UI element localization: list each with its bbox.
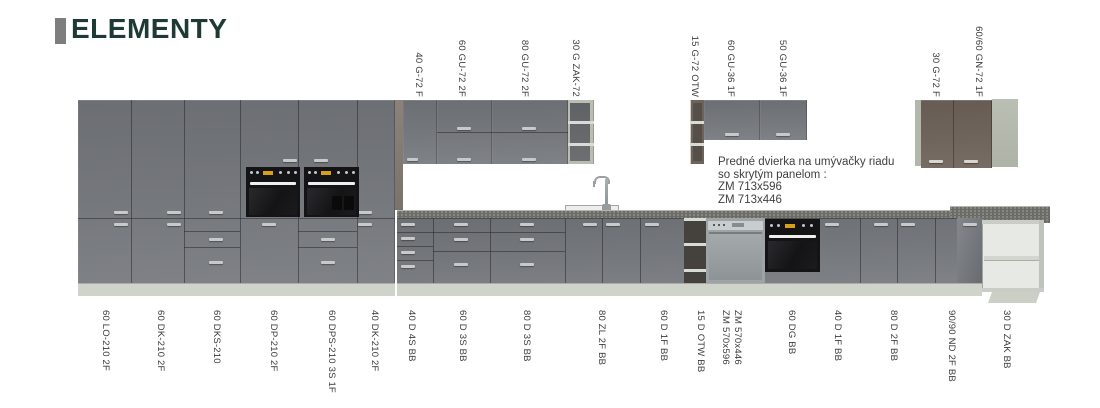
drawer-line (433, 232, 490, 233)
dishwasher-button (718, 224, 720, 226)
plinth (397, 283, 982, 296)
drawer-line (184, 231, 240, 232)
dishwasher-button (723, 224, 725, 226)
shelf-interior (570, 103, 590, 161)
label-60-dg-bb: 60 DG BB (786, 310, 796, 354)
shelf-side-panel (1039, 220, 1044, 292)
drawer-handle (454, 223, 468, 226)
base-cabinet-run (397, 218, 982, 283)
shelf (684, 269, 706, 272)
dishwasher-front-panel (709, 232, 762, 280)
label-60-dp-210-2f: 60 DP-210 2F (268, 310, 278, 372)
oven-knob (294, 171, 297, 174)
faucet-column (605, 179, 608, 206)
door-handle (358, 211, 372, 214)
label-60-d-3s-bb: 60 D 3S BB (457, 310, 467, 362)
oven-handle (769, 235, 816, 238)
door-handle (725, 133, 739, 136)
drawer-line (397, 246, 433, 247)
door-handle (583, 223, 597, 226)
canister-silhouette (332, 196, 342, 210)
wall-cabinet-80-gu-72-2f (492, 100, 568, 164)
drawer-handle (209, 238, 223, 241)
door-split-line (78, 218, 395, 219)
drawer-handle (520, 223, 534, 226)
door-handle (645, 223, 659, 226)
door-handle (964, 160, 978, 163)
door-divider (602, 218, 603, 283)
cabinet-divider (240, 100, 241, 283)
label-40-dk-210-2f: 40 DK-210 2F (369, 310, 379, 372)
door-handle (114, 211, 128, 214)
cabinet-divider (935, 218, 936, 283)
door-handle (167, 223, 181, 226)
note-line: Predné dvierka na umývačky riadu (718, 156, 894, 169)
plinth (78, 283, 395, 296)
door-handle (825, 223, 839, 226)
label-40-d-4s-bb: 40 D 4S BB (406, 310, 416, 362)
drawer-line (298, 231, 357, 232)
door-handle (963, 223, 977, 226)
door-handle (522, 127, 536, 130)
door-handle (901, 223, 915, 226)
shelf (684, 218, 706, 221)
drawer-handle (321, 238, 335, 241)
cabinet-divider (131, 100, 132, 283)
oven-knob (250, 171, 253, 174)
oven-knob (352, 171, 355, 174)
wall-cabinet-60-60-gn-72-1f (954, 100, 992, 168)
door-handle (874, 223, 888, 226)
oven-door-glass (307, 188, 356, 215)
drawer-handle (321, 261, 335, 264)
door-handle (114, 223, 128, 226)
oven-display (263, 171, 273, 175)
corner-cabinet-side-panel (992, 99, 1018, 167)
oven-knob (810, 224, 813, 227)
door-handle (358, 223, 372, 226)
label-80-d-2f-bb: 80 D 2F BB (888, 310, 898, 361)
shelf (568, 143, 594, 146)
oven-display (321, 171, 331, 175)
oven-knob (287, 171, 290, 174)
base-shelf-30-d-zak (982, 220, 1044, 292)
label-90-90-nd-2f-bb: 90/90 ND 2F BB (946, 310, 956, 382)
wall-cabinet-60-gu-36-1f (704, 100, 760, 140)
wall-cabinet-40-g-72-f (403, 100, 437, 164)
label-60-d-1f-bb: 60 D 1F BB (658, 310, 668, 361)
oven-handle (308, 182, 355, 185)
flap-split-line (437, 132, 492, 133)
drawer-line (397, 232, 433, 233)
cabinet-divider (184, 100, 185, 283)
door-handle (929, 160, 943, 163)
catalog-page: ELEMENTY 40 G-72 F 60 GU-72 2F 80 GU-72 … (0, 0, 1100, 408)
label-60-dks-210: 60 DKS-210 (211, 310, 221, 364)
corner-cabinet-front (957, 218, 982, 283)
label-40-d-1f-bb: 40 D 1F BB (832, 310, 842, 361)
oven-display (785, 224, 795, 228)
dishwasher (706, 218, 765, 283)
door-divider (897, 218, 898, 283)
drawer-line (298, 247, 357, 248)
drawer-line (490, 251, 565, 252)
oven-knob (770, 224, 773, 227)
oven-knob (777, 224, 780, 227)
oven-knob (308, 171, 311, 174)
shelf (568, 121, 594, 124)
label-30-d-zak-bb: 30 D ZAK BB (1001, 310, 1011, 369)
label-zm-570x446: ZM 570x446 (732, 310, 742, 365)
door-handle (457, 127, 471, 130)
drawer-handle (401, 251, 415, 254)
label-zm-570x596: ZM 570x596 (720, 310, 730, 365)
door-handle (776, 133, 790, 136)
drawer-handle (401, 237, 415, 240)
label-15-d-otw-bb: 15 D OTW BB (695, 310, 705, 372)
cabinet-divider (640, 218, 641, 283)
dishwasher-note: Predné dvierka na umývačky riadu so skry… (718, 156, 894, 206)
shelf-rail (982, 220, 1044, 224)
label-80-d-3s-bb: 80 D 3S BB (521, 310, 531, 362)
built-in-oven (765, 219, 820, 272)
oven-handle (250, 182, 296, 185)
shelf (684, 243, 706, 246)
shelf-interior (693, 103, 702, 161)
door-handle (407, 158, 418, 161)
door-handle (522, 158, 536, 161)
drawer-line (184, 247, 240, 248)
cabinet-side-panel (395, 100, 403, 210)
oven-knob (314, 171, 317, 174)
wall-shelf-30-g-zak-72 (568, 100, 594, 164)
dishwasher-control-panel (708, 221, 763, 230)
oven-door-glass (249, 188, 297, 215)
drawer-handle (454, 238, 468, 241)
label-60-dps-210-3s-1f: 60 DPS-210 3S 1F (326, 310, 336, 393)
dishwasher-button (713, 224, 715, 226)
door-handle (606, 223, 620, 226)
drawer-handle (401, 265, 415, 268)
oven-door-glass (768, 241, 817, 269)
drawer-line (397, 260, 433, 261)
oven-knob (802, 224, 805, 227)
door-handle (262, 223, 276, 226)
plinth (988, 292, 1040, 303)
label-60-dk-210-2f: 60 DK-210 2F (155, 310, 165, 372)
faucet (592, 176, 612, 210)
oven-knob (345, 171, 348, 174)
oven-knob (279, 171, 282, 174)
note-line: ZM 713x446 (718, 194, 894, 207)
dishwasher-display (732, 223, 744, 227)
drawer-handle (520, 238, 534, 241)
shelf (690, 143, 704, 146)
door-handle (167, 211, 181, 214)
tall-cabinet-run (78, 100, 395, 283)
note-line: ZM 713x596 (718, 181, 894, 194)
drawer-line (433, 251, 490, 252)
drawer-handle (401, 223, 415, 226)
label-80-zl-2f-bb: 80 ZL 2F BB (596, 310, 606, 365)
faucet-tip (593, 181, 595, 187)
drawer-handle (209, 261, 223, 264)
shelf (690, 121, 704, 124)
drawer-handle (454, 263, 468, 266)
note-line: so skrytým panelom : (718, 169, 894, 182)
canister-silhouette (344, 196, 354, 210)
drawer-line (490, 232, 565, 233)
flap-split-line (492, 132, 568, 133)
wall-shelf-15-g-72-otw (690, 100, 704, 164)
door-handle (314, 159, 328, 162)
door-handle (457, 158, 471, 161)
door-handle (209, 211, 223, 214)
oven-knob (256, 171, 259, 174)
cabinet-divider (565, 218, 566, 283)
oven-knob (337, 171, 340, 174)
base-shelf-15-d-otw (684, 218, 706, 283)
wall-cabinet-50-gu-36-1f (760, 100, 807, 140)
label-60-lo-210-2f: 60 LO-210 2F (100, 310, 110, 371)
cabinet-divider (860, 218, 861, 283)
built-in-oven (246, 167, 300, 217)
wall-cabinet-60-gu-72-2f (437, 100, 492, 164)
wall-cabinet-30-g-72-f (921, 100, 954, 168)
drawer-handle (520, 263, 534, 266)
door-handle (283, 159, 297, 162)
shelf (984, 256, 1039, 261)
built-in-oven (304, 167, 359, 217)
